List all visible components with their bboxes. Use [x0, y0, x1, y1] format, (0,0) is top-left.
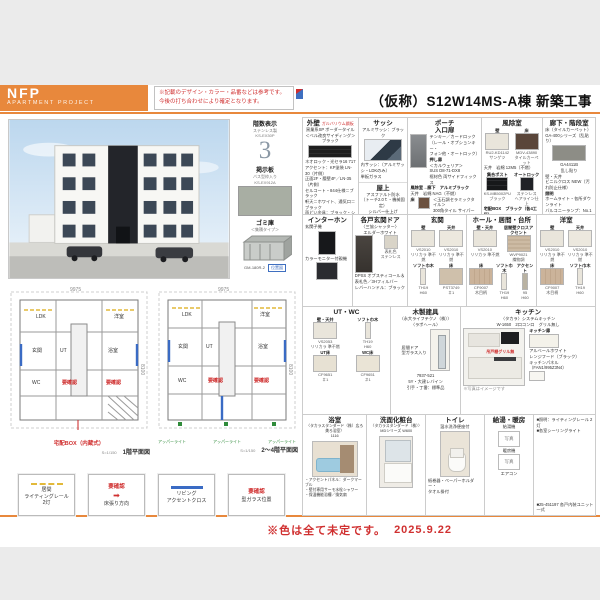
toilet-photo — [440, 431, 470, 477]
corridor-wall: 壁・天井 ビニルクロス NEW（汚れ防止仕様） — [545, 174, 593, 191]
spec-cell-bath: 浴室 〈タカラスタンダード（株）広ろ美ろ浴室〉 1116 ・アクセントパネル：ダ… — [303, 415, 367, 516]
heater-label: 暖房機 — [487, 448, 532, 454]
windbreak-ceiling: 天井 岩綿 12M5（不燃） — [484, 165, 541, 171]
dumpster-image — [238, 232, 292, 264]
legend-item-glass-position: 要確認 型ガラス位置 — [228, 474, 285, 516]
bedroom-floor-swatch — [540, 268, 564, 285]
genkan-skirt-swatch — [420, 268, 426, 285]
logo-subtext: APARTMENT PROJECT — [7, 100, 141, 106]
floor-plan-2: LDK 洋室 玄関 UT 浴室 WC 要確認 要確認 9975 8100 アッパ… — [156, 284, 298, 468]
kitchen-hood: レンジフード（ブラック） — [529, 354, 579, 360]
hall-accent-swatch — [507, 235, 531, 252]
spec-cell-sash-roof: サッシ アルミサッシ：ブラック 内サッシ：（アルミサッシ・LDKのみ） 単板ガラ… — [359, 118, 409, 215]
bedroom-wall-code: VS2010 リリカラ 準不燃 — [539, 247, 565, 262]
windbreak-floor-swatch — [515, 133, 539, 150]
side-spec-column: 階数表示 ステンレス製 KS-EX30P 3 掲示板 バス型枠入り KS-EX9… — [230, 119, 296, 281]
spec-cell-exterior-wall: 外壁 ガルバリウム鋼板 窯業系SP ボーダータイル ＜ベル改良サイディング＞ ブ… — [303, 118, 359, 215]
push-door-body: ＜カルウェリア＞ SUS D8-71-DX8 框材色 両サイドフィックス — [429, 163, 478, 186]
room-label: LDK — [182, 312, 192, 318]
board-sub: バス型枠入り KS-EX912A — [253, 174, 277, 184]
nfp-logo: NFP APARTMENT PROJECT — [0, 85, 148, 111]
intercom-outdoor-photo — [318, 231, 336, 255]
board-swatch — [238, 186, 292, 216]
porch-body: テンキー／カードロック （レール・オプションキー・ フォン他・オートロック） — [429, 134, 478, 157]
water-heater-photo-box: 写真 — [498, 431, 520, 447]
porch-title: ポーチ 入口扉 — [410, 120, 478, 134]
plan1-scale: S=1/150 — [102, 450, 117, 455]
corridor-light-body: ホームライト・各所ダウンライト バルコニーランプ：No.1 Fホワイト 廊下・階… — [545, 196, 593, 215]
room-label: 玄関 — [32, 347, 42, 354]
entrance-door-sub: 〈三協シャッター〉 エルダーホワイト — [355, 224, 406, 235]
utwc-wall-code: VS2053 リリカラ 準不燃 — [311, 339, 340, 349]
fittings-sub: 〈永大ライフテクノ（株）〉 〈ラポヘール〉 — [393, 316, 458, 327]
flag-label: 要確認 — [254, 377, 269, 384]
left-panel: 階数表示 ステンレス製 KS-EX30P 3 掲示板 バス型枠入り KS-EX9… — [0, 114, 300, 515]
sash-body: 内サッシ：（アルミサッシ・LDKのみ） 単板ガラス — [361, 162, 406, 179]
intercom-monitor-label: カラーモニター付親機 — [305, 256, 350, 262]
heater-photo-box: 写真 — [498, 454, 520, 470]
kitchen-image-note: ※写真はイメージです — [463, 386, 593, 392]
exterior-body1: 窯業系SP ボーダータイル ＜ベル改良サイディング＞ ブラック — [305, 127, 356, 144]
exterior-code: ネオロック・光セラ16 717 — [305, 159, 356, 165]
building-render — [8, 119, 230, 279]
windbreak-floor-code: MDV-43890 タイルカーペット — [513, 150, 540, 165]
room-label: 洋室 — [114, 313, 124, 320]
fittings-note: 引手・丁番：標準品 — [393, 385, 458, 391]
legend-title: 要確認 — [108, 482, 125, 490]
genkan-ceiling-code: VS2010 リリカラ 準不燃 — [438, 247, 464, 262]
water-heater-label: 給湯機 — [487, 424, 532, 430]
hall-wall-swatch — [473, 230, 497, 247]
room-label: 洋室 — [260, 311, 270, 318]
header: NFP APARTMENT PROJECT ※記載のデザイン・カラー・品番などは… — [0, 85, 600, 112]
delivery-box-line: 宅配BOX ブラック（各4工区） — [484, 206, 541, 215]
plan2-scale: S=1/150 — [240, 448, 255, 453]
utwc-wall-swatch — [313, 322, 337, 339]
notes-bottom: ■25-451197 各戸内装ユニット一式 — [536, 502, 595, 513]
page-title: （仮称）S12W14MS-A棟 新築工事 — [370, 90, 592, 110]
wc-floor-swatch — [356, 355, 380, 372]
floor-numeral: 3 — [259, 138, 272, 163]
roof-title: 屋上 — [361, 185, 406, 192]
garbage-spec: ゴミ庫 ＜集積タイプ＞ GM-180R-2 位置図 — [238, 218, 292, 272]
logo-text: NFP — [7, 87, 141, 100]
vanity-photo — [379, 436, 413, 488]
spec-cell-hall-ldk: ホール・居間・台所 壁・天井 VS2010 リリカラ 準不燃 居間壁クロスアクセ… — [467, 215, 537, 307]
bath-photo — [312, 441, 358, 477]
room-label: UT — [60, 348, 67, 354]
notes-top: ■照明：ライティングレール 2灯 ■各室シーリングライト — [536, 417, 593, 434]
wc-floor-code: CF9651 ＃1 — [361, 372, 375, 382]
genkan-wall-swatch — [411, 230, 435, 247]
genkan-floor-swatch — [439, 268, 463, 285]
roof-body: アスファルト防水 （トーチ2.0ｔ・機械固定） シルバー仕上げ — [361, 192, 406, 215]
spec-cell-corridor: 廊下・階段室 床（タイルカーペット） GA-400シリーズ（乱貼り） GA441… — [543, 118, 596, 215]
garbage-title: ゴミ庫 — [256, 218, 274, 227]
legend: 居間 ライティングレール 2灯 要確認 ➡ 床張り方向 リビング アクセントクロ… — [8, 474, 298, 516]
mailbox-code: KS-MB5002PU ブラック — [484, 191, 511, 201]
mailbox-photo — [486, 177, 508, 191]
flag-label: 要確認 — [62, 379, 77, 386]
spec-cell-porch-door: ポーチ 入口扉 テンキー／カードロック （レール・オプションキー・ フォン他・オ… — [408, 118, 481, 215]
footer-date: 2025.9.22 — [394, 524, 452, 536]
fittings-left-label: 居間ドア 型ガラス入り — [402, 345, 427, 356]
spec-cell-genkan: 玄関 壁 VS2010 リリカラ 準不燃 天井 VS2010 リリカラ 準不燃 … — [408, 215, 467, 307]
kitchen-red-note: 吊戸棚グリル無 — [486, 349, 514, 355]
hall-floor-code: CF9007 木目柄 — [474, 285, 488, 295]
hall-accent2-label: アクセント — [516, 263, 535, 273]
spec-cell-intercom: インターホン 玄関子機 カラーモニター付親機 — [303, 215, 353, 307]
dimension-top: 9975 — [70, 287, 81, 293]
windbreak-wall-code: RU2-KD1142 サンゲツ — [486, 150, 510, 160]
hall-floor-swatch — [469, 268, 493, 285]
room-label: 浴室 — [108, 347, 118, 354]
spec-cell-notes: ■照明：ライティングレール 2灯 ■各室シーリングライト ■25-451197 … — [534, 415, 596, 516]
genkan-ceiling-swatch — [439, 230, 463, 247]
legend-text: 型ガラス位置 — [242, 497, 272, 504]
genkan-wall-code: VS2010 リリカラ 準不燃 — [410, 247, 436, 262]
plan2-caption: 2〜4階平面図 — [261, 445, 298, 454]
upper-light-label: アッパーライト — [213, 439, 241, 445]
footer: ※色は全て未定です。 2025.9.22 — [0, 517, 600, 543]
plan1-caption: 1階平面図 — [123, 447, 150, 456]
intercom-outdoor-label: 玄関子機 — [305, 224, 350, 230]
aircon-label: エアコン — [487, 471, 532, 477]
hall-accent2-code: 95 H60 — [521, 290, 528, 300]
nameplate-label: 表札色 ステンレス — [381, 249, 401, 259]
bedroom-ceiling-code: VS2010 リリカラ 準不燃 — [567, 247, 593, 262]
upper-light-label: アッパーライト — [158, 439, 186, 445]
room-label: 浴室 — [258, 343, 268, 350]
floor-sign-title: 階数表示 — [253, 119, 277, 128]
plan1-red-note: 宅配BOX（内蔵式） — [8, 439, 150, 447]
notice-text: ※記載のデザイン・カラー・品番などは参考です。 今後の打ち合わせにより確定となり… — [159, 89, 285, 107]
spec-cell-bedroom: 洋室 壁 VS2010 リリカラ 準不燃 天井 VS2010 リリカラ 準不燃 … — [537, 215, 596, 307]
fittings-door-photo — [430, 329, 450, 371]
utwc-title: UT・WC — [305, 309, 388, 316]
room-label: LDK — [36, 314, 46, 320]
kitchen-sub: 〈タカラ〉システムキッチン W-1650 2口コンロ グリル無し — [463, 316, 593, 327]
utwc-skirt-swatch — [365, 322, 371, 339]
garbage-code: GM-180R-2 — [244, 265, 265, 270]
porch-floor-label: 床 — [410, 197, 414, 203]
toilet-note: 紙巻器・ペーパーホルダー・ タオル掛付 — [428, 478, 482, 495]
spec-grid: 外壁 ガルバリウム鋼板 窯業系SP ボーダータイル ＜ベル改良サイディング＞ ブ… — [300, 114, 600, 515]
blue-line-mark — [171, 486, 203, 489]
toilet-sub: 温水洗浄便座付 — [428, 424, 482, 430]
garbage-tag: 位置図 — [268, 264, 286, 272]
red-arrow-mark: ➡ — [113, 492, 120, 499]
bedroom-skirt-code: TH19 H60 — [575, 285, 585, 295]
windbreak-wall-swatch — [485, 133, 509, 150]
spec-cell-vanity: 洗面化粧台 〈タカラスタンダード（株）〉 MDシリーズ W600 — [367, 415, 426, 516]
kitchen-panel: キッチンパネル （FAN1/995Z3N4） — [529, 360, 579, 371]
board-spec: 掲示板 バス型枠入り KS-EX912A — [238, 165, 292, 215]
spec-cell-entrance-door: 各戸玄関ドア 〈三協シャッター〉 エルダーホワイト 表札色 ステンレス DPSS… — [353, 215, 409, 307]
exterior-title: 外壁 — [307, 120, 320, 127]
corridor-floor-code: GA4411B 乱し貼り — [545, 162, 593, 173]
exterior-tag: ガルバリウム鋼板 — [322, 121, 354, 126]
spec-cell-water-heating: 給湯・暖房 給湯機 写真 暖房機 写真 エアコン — [485, 415, 535, 516]
entrance-door-photo — [355, 235, 373, 273]
bedroom-skirt-swatch — [577, 268, 583, 285]
floor-plan-2-drawing: LDK 洋室 玄関 UT 浴室 WC 要確認 要確認 9975 8100 — [156, 284, 298, 434]
dimension-side: 8100 — [139, 364, 145, 375]
exterior-swatch — [308, 145, 352, 158]
bedroom-ceiling-swatch — [568, 230, 592, 247]
floor-sign-spec: 階数表示 ステンレス製 KS-EX30P 3 — [253, 119, 277, 163]
legend-item-lighting-rail: 居間 ライティングレール 2灯 — [18, 474, 75, 516]
legend-text: 居間 ライティングレール 2灯 — [24, 487, 69, 507]
entrance-door-body: DPSS オプスティコール＆ 表札色／3Hフィルバー レバーハンドル：ブラック — [355, 273, 406, 290]
hall-accent-label: 居間壁クロスアクセント — [503, 225, 535, 235]
ut-floor-code: CF9651 ＃1 — [318, 372, 332, 382]
hall-accent2-swatch — [522, 273, 528, 290]
kitchen-photo: 吊戸棚グリル無 — [463, 328, 525, 386]
legend-title: 要確認 — [248, 487, 265, 495]
bath-sub: 〈タカラスタンダード（株）広ろ美ろ浴室〉 1116 — [305, 424, 364, 439]
hall-skirt-swatch — [501, 273, 507, 290]
nameplate-photo — [384, 235, 398, 249]
flag-label: 要確認 — [208, 377, 223, 384]
spec-cell-toilet: トイレ 温水洗浄便座付 紙巻器・ペーパーホルダー・ タオル掛付 — [426, 415, 485, 516]
windbreak-title: 風除室 — [484, 120, 541, 127]
corridor-floor-swatch — [552, 145, 586, 161]
porch-door-photo — [410, 134, 427, 168]
corridor-floor: 床（タイルカーペット） GA-400シリーズ（乱貼り） — [545, 127, 593, 144]
spec-cell-ut-wc: UT・WC 壁・天井 VS2053 リリカラ 準不燃 ソフト巾木 TH19 H6… — [303, 307, 391, 415]
kitchen-door-swatch — [529, 334, 559, 348]
room-label: 玄関 — [178, 343, 188, 350]
hall-wall-code: VS2010 リリカラ 準不燃 — [470, 247, 499, 257]
color-flag-icon — [296, 89, 303, 99]
hall-accent-code: WVP9021 織物調 — [510, 252, 528, 262]
porch-floor-code: ＜玉石調セラミックタイル＞ 300角タイル サイパーン・乱貼り — [433, 197, 479, 215]
sash-photo — [364, 139, 402, 161]
legend-text: 床張り方向 — [104, 501, 129, 508]
spec-cell-windbreak: 風除室 壁 RU2-KD1142 サンゲツ 床 MDV-43890 タイルカーペ… — [482, 118, 544, 215]
autolock-photo — [520, 177, 534, 191]
notice-box: ※記載のデザイン・カラー・品番などは参考です。 今後の打ち合わせにより確定となり… — [154, 86, 294, 110]
bath-body: ・アクセントパネル：ダークマーブル ・壁付専用サーモ水栓シャワー ・保温機能浴槽… — [305, 478, 364, 499]
ut-floor-swatch — [313, 355, 337, 372]
room-label: UT — [206, 344, 213, 350]
spec-sheet: NFP APARTMENT PROJECT ※記載のデザイン・カラー・品番などは… — [0, 85, 600, 547]
vanity-sub: 〈タカラスタンダード（株）〉 MDシリーズ W600 — [369, 424, 423, 434]
floor-plans: LDK 洋室 玄関 UT 浴室 WC 要確認 要確認 9975 8100 宅配B… — [8, 284, 298, 468]
dimension-side: 8100 — [287, 364, 293, 375]
spec-cell-wood-fittings: 木製建具 〈永大ライフテクノ（株）〉 〈ラポヘール〉 居間ドア 型ガラス入り 7… — [391, 307, 461, 415]
room-label: WC — [178, 378, 187, 384]
genkan-floor-code: PST3749 ＃1 — [443, 285, 460, 295]
legend-item-floor-direction: 要確認 ➡ 床張り方向 — [88, 474, 145, 516]
legend-item-accent-cloth: リビング アクセントクロス — [158, 474, 215, 516]
room-label: WC — [32, 380, 41, 386]
floor-plan-1: LDK 洋室 玄関 UT 浴室 WC 要確認 要確認 9975 8100 宅配B… — [8, 284, 150, 468]
kitchen-panel-swatch — [529, 371, 545, 381]
hall-title: ホール・居間・台所 — [469, 217, 534, 224]
legend-text: リビング アクセントクロス — [167, 491, 207, 505]
exterior-body2: アクセント：KP塗装 LN-30（片側） 正面2F・腰壁4F／LN-35（片側） — [305, 165, 356, 188]
sash-sub: アルミサッシ：ブラック — [361, 127, 406, 138]
genkan-title: 玄関 — [410, 217, 464, 224]
dimension-top: 9975 — [218, 287, 229, 293]
footer-note: ※色は全て未定です。 — [267, 522, 386, 538]
yellow-dash-mark — [31, 483, 63, 485]
spec-cell-kitchen: キッチン 〈タカラ〉システムキッチン W-1650 2口コンロ グリル無し 吊戸… — [461, 307, 596, 415]
bedroom-floor-code: CF9007 木目柄 — [545, 285, 559, 295]
autolock-code: ステンレス ヘアライン仕上 — [513, 191, 540, 206]
utwc-skirt-code: TH19 H60 — [363, 339, 373, 349]
bedroom-wall-swatch — [540, 230, 564, 247]
hall-skirt-label: ソフト巾木 — [495, 263, 514, 273]
floor-plan-1-drawing: LDK 洋室 玄関 UT 浴室 WC 要確認 要確認 9975 8100 — [8, 284, 150, 434]
flag-label: 要確認 — [106, 379, 121, 386]
fittings-code: 7937-521 5Y・大建レバイン — [393, 373, 458, 384]
exterior-body3: セルコート・844仕様＝ブラック 軒天＝ホワイト、通気口＝ブラック 雨どい金具：… — [305, 188, 356, 215]
intercom-monitor-photo — [316, 262, 338, 280]
hall-skirt-code: TH19 H60 — [499, 290, 509, 300]
bedroom-title: 洋室 — [539, 217, 593, 224]
porch-floor-swatch — [418, 197, 430, 209]
genkan-skirt-code: TH19 H60 — [418, 285, 428, 295]
